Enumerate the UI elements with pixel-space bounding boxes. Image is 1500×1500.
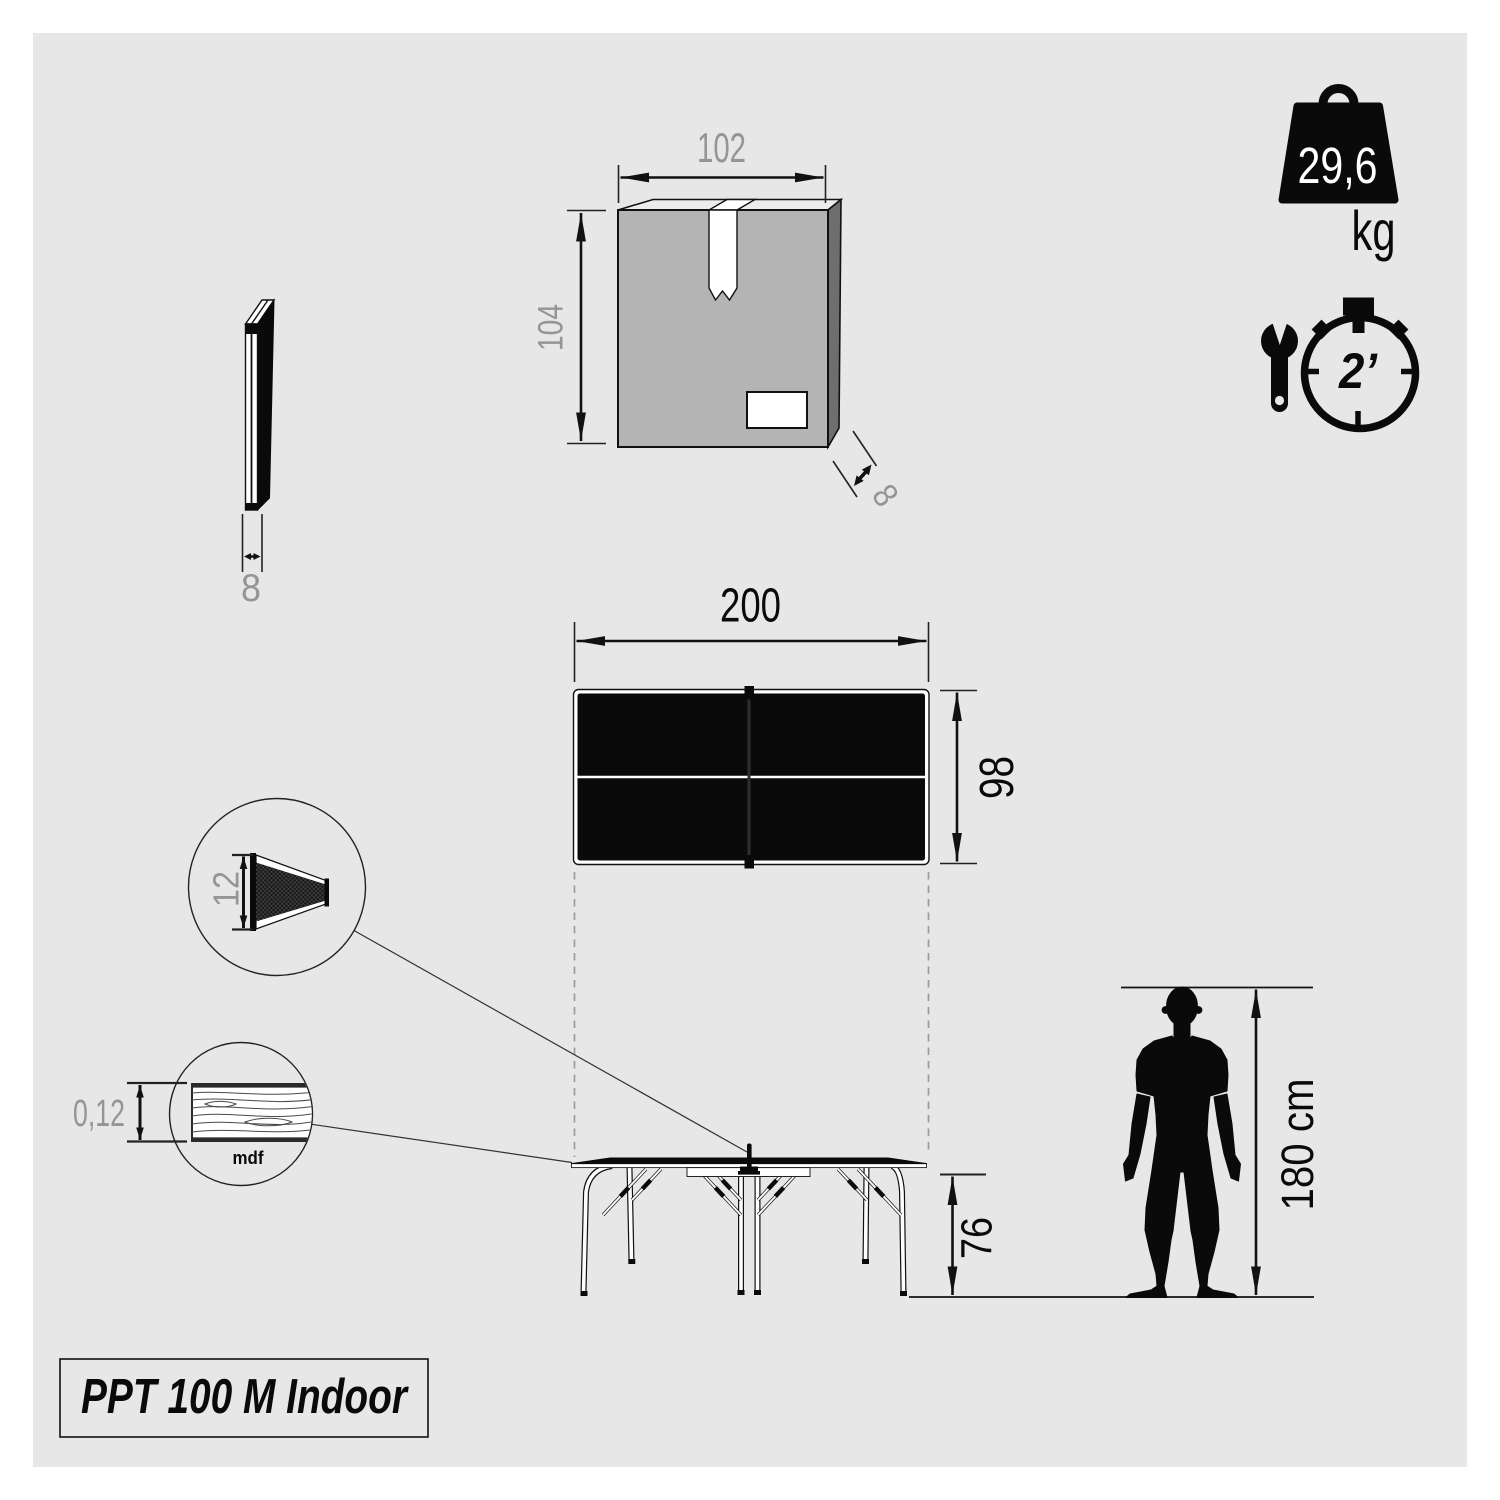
svg-text:104: 104 xyxy=(532,304,571,351)
svg-text:0,12: 0,12 xyxy=(73,1093,125,1135)
svg-text:12: 12 xyxy=(205,871,246,907)
svg-text:8: 8 xyxy=(241,567,261,610)
svg-text:200: 200 xyxy=(720,580,781,633)
svg-text:kg: kg xyxy=(1352,199,1396,262)
svg-text:102: 102 xyxy=(697,124,746,171)
svg-text:2’: 2’ xyxy=(1338,343,1378,399)
svg-text:76: 76 xyxy=(952,1217,1001,1259)
svg-text:180 cm: 180 cm xyxy=(1272,1079,1323,1211)
svg-text:98: 98 xyxy=(971,756,1024,799)
svg-text:mdf: mdf xyxy=(233,1148,265,1168)
svg-text:29,6: 29,6 xyxy=(1298,137,1378,194)
svg-text:PPT 100 M Indoor: PPT 100 M Indoor xyxy=(81,1370,409,1424)
